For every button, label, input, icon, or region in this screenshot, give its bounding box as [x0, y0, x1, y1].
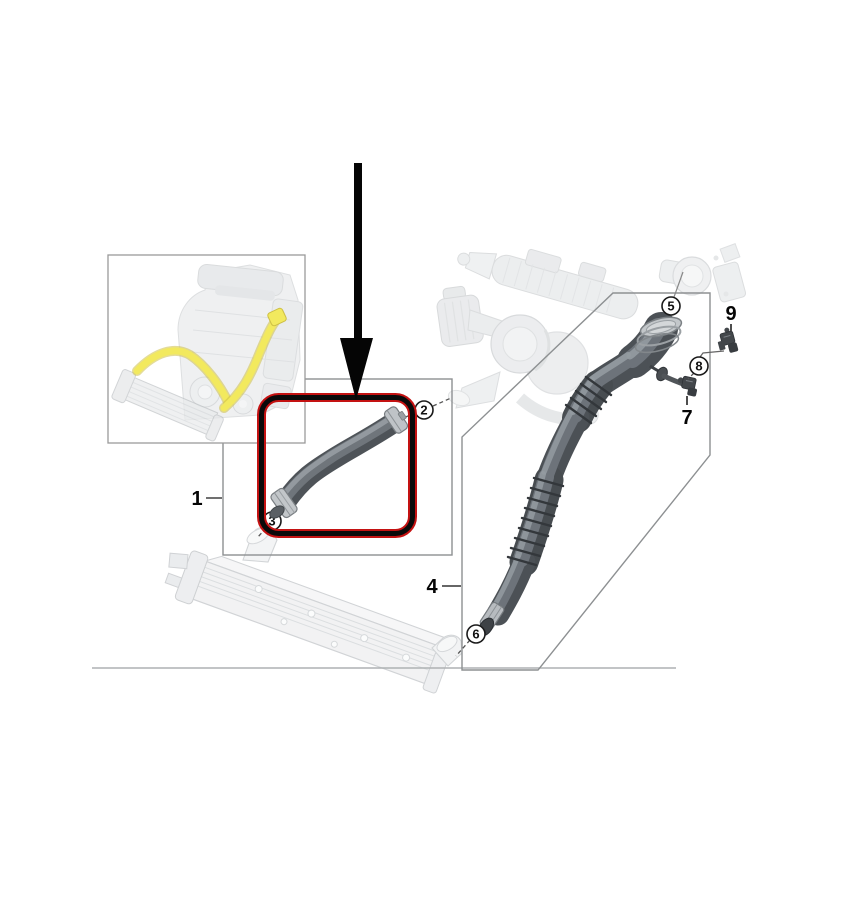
sensor-icon-7 [675, 375, 699, 397]
intercooler-illustration [156, 525, 462, 695]
callout-7-label: 7 [681, 407, 692, 429]
callout-8-label: 8 [695, 359, 702, 374]
callout-8: 8 [688, 351, 724, 379]
parts-diagram: 1 4 2 3 5 6 8 7 [0, 0, 846, 900]
callout-9-label: 9 [725, 303, 736, 325]
callout-1-label: 1 [191, 488, 202, 510]
callout-4: 4 [426, 576, 461, 598]
parts-diagram-svg: 1 4 2 3 5 6 8 7 [0, 0, 846, 900]
callout-6-label: 6 [472, 627, 479, 642]
engine-inset [108, 255, 305, 443]
callout-1: 1 [191, 488, 222, 510]
callout-2-label: 2 [420, 403, 427, 418]
callout-9: 9 [725, 303, 736, 331]
callout-4-label: 4 [426, 576, 438, 598]
down-arrow-icon [340, 163, 373, 400]
intake-manifold-illustration [454, 229, 746, 323]
callout-5-label: 5 [667, 299, 674, 314]
callout-7: 7 [681, 396, 692, 429]
